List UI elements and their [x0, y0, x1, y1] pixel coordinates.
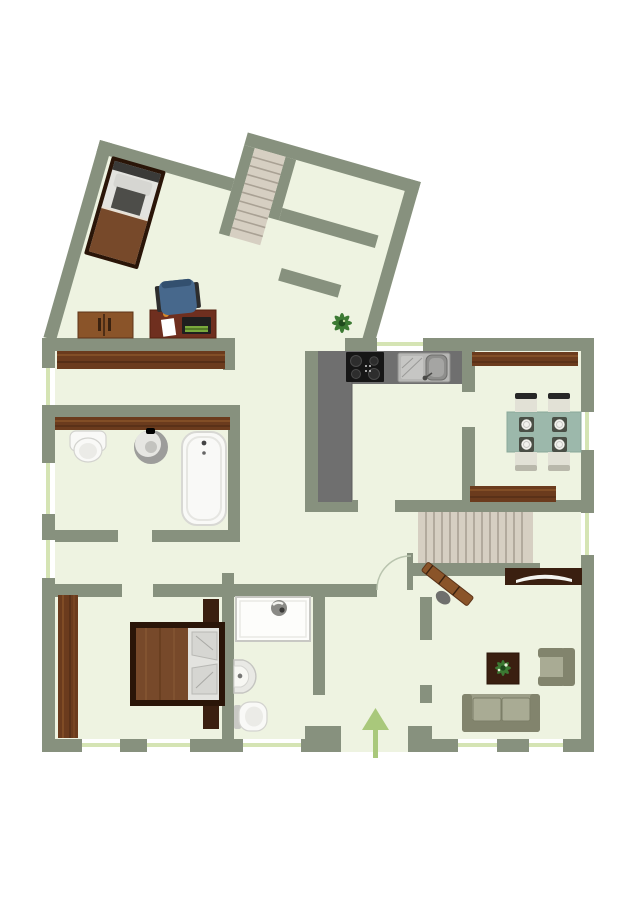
window-shower	[243, 739, 301, 752]
bedroom-wardrobe	[58, 595, 78, 738]
desk	[150, 310, 216, 338]
wing-bottom-wall	[42, 338, 233, 351]
sofa	[462, 694, 540, 732]
dining-table	[507, 412, 581, 452]
office-chair	[154, 278, 201, 316]
dining-sideboard-bottom	[470, 486, 556, 502]
bathtub	[182, 432, 226, 525]
armchair	[538, 648, 575, 686]
hall-door-leaf	[407, 553, 413, 590]
dining-chair-top-2	[548, 393, 570, 412]
dining-door-gap	[462, 392, 475, 427]
dresser	[78, 312, 133, 338]
double-bed	[130, 622, 225, 706]
wardrobe-strip-bottom	[55, 417, 230, 430]
shower-stall	[236, 597, 310, 641]
laptop	[182, 317, 211, 334]
kitchen-sink	[398, 353, 450, 382]
entrance-pillar-left	[305, 726, 341, 752]
nightstand-top	[203, 599, 219, 622]
window-living-1	[458, 739, 497, 752]
coffee-table	[487, 653, 519, 684]
shower-room-toilet	[234, 702, 267, 731]
bathroom-top-wall	[42, 405, 240, 417]
dining-chair-top-1	[515, 393, 537, 412]
corridor-plant	[332, 313, 352, 333]
shower-room-right-wall	[313, 585, 325, 695]
cooktop	[346, 352, 384, 382]
main-staircase	[418, 512, 533, 563]
kitchen-left-wall	[305, 351, 318, 512]
paper	[161, 318, 176, 337]
window-dining-right	[581, 412, 594, 450]
window-bath-left	[42, 463, 55, 514]
dining-sideboard-top	[472, 352, 578, 366]
bedroom-door-gap	[122, 584, 153, 597]
window-hall2-left	[42, 540, 55, 578]
window-hall-left	[42, 368, 55, 405]
window-kitchen-top	[377, 338, 423, 351]
window-living-2	[529, 739, 563, 752]
floorplan-page	[0, 0, 636, 900]
window-stair-right	[581, 513, 594, 555]
dining-chair-bottom-1	[515, 452, 537, 471]
window-bedroom-1	[82, 739, 120, 752]
wardrobe-strip-top	[57, 351, 225, 369]
dining-chair-bottom-2	[548, 452, 570, 471]
kitchen-door-gap	[358, 500, 395, 512]
coffee-table-plant	[495, 660, 511, 676]
floorplan	[0, 0, 636, 900]
living-left-wall-upper	[420, 597, 432, 640]
nightstand-bottom	[203, 706, 219, 729]
bathroom-door-gap	[118, 530, 152, 542]
bedroom-top-wall	[55, 584, 377, 597]
living-left-wall-lower	[420, 685, 432, 703]
entrance-pillar-right	[408, 726, 432, 752]
tv-lowboard	[505, 568, 582, 585]
window-bedroom-2	[147, 739, 190, 752]
